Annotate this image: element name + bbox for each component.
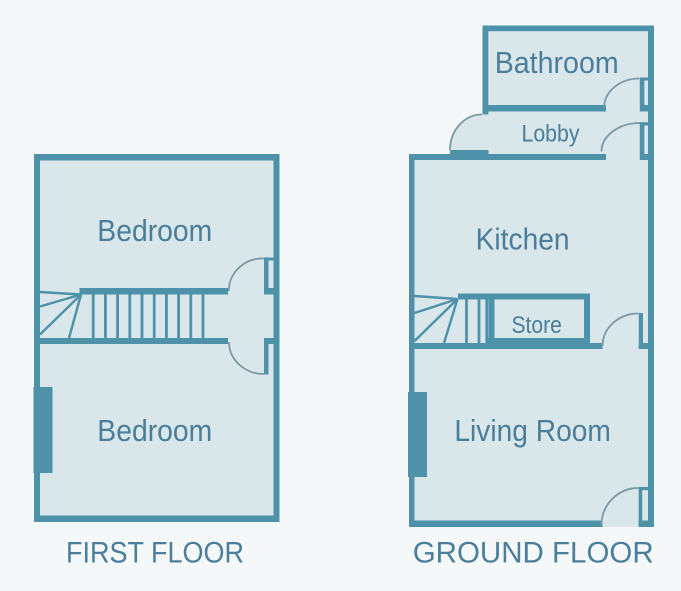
svg-text:Bathroom: Bathroom bbox=[495, 45, 619, 80]
svg-text:Bedroom: Bedroom bbox=[97, 213, 212, 248]
svg-text:FIRST FLOOR: FIRST FLOOR bbox=[66, 537, 244, 570]
svg-text:Lobby: Lobby bbox=[522, 120, 581, 147]
svg-text:GROUND FLOOR: GROUND FLOOR bbox=[413, 537, 654, 570]
svg-text:Living Room: Living Room bbox=[454, 413, 611, 448]
svg-text:Store: Store bbox=[511, 312, 562, 339]
svg-text:Kitchen: Kitchen bbox=[476, 222, 570, 257]
svg-text:Bedroom: Bedroom bbox=[97, 413, 212, 448]
